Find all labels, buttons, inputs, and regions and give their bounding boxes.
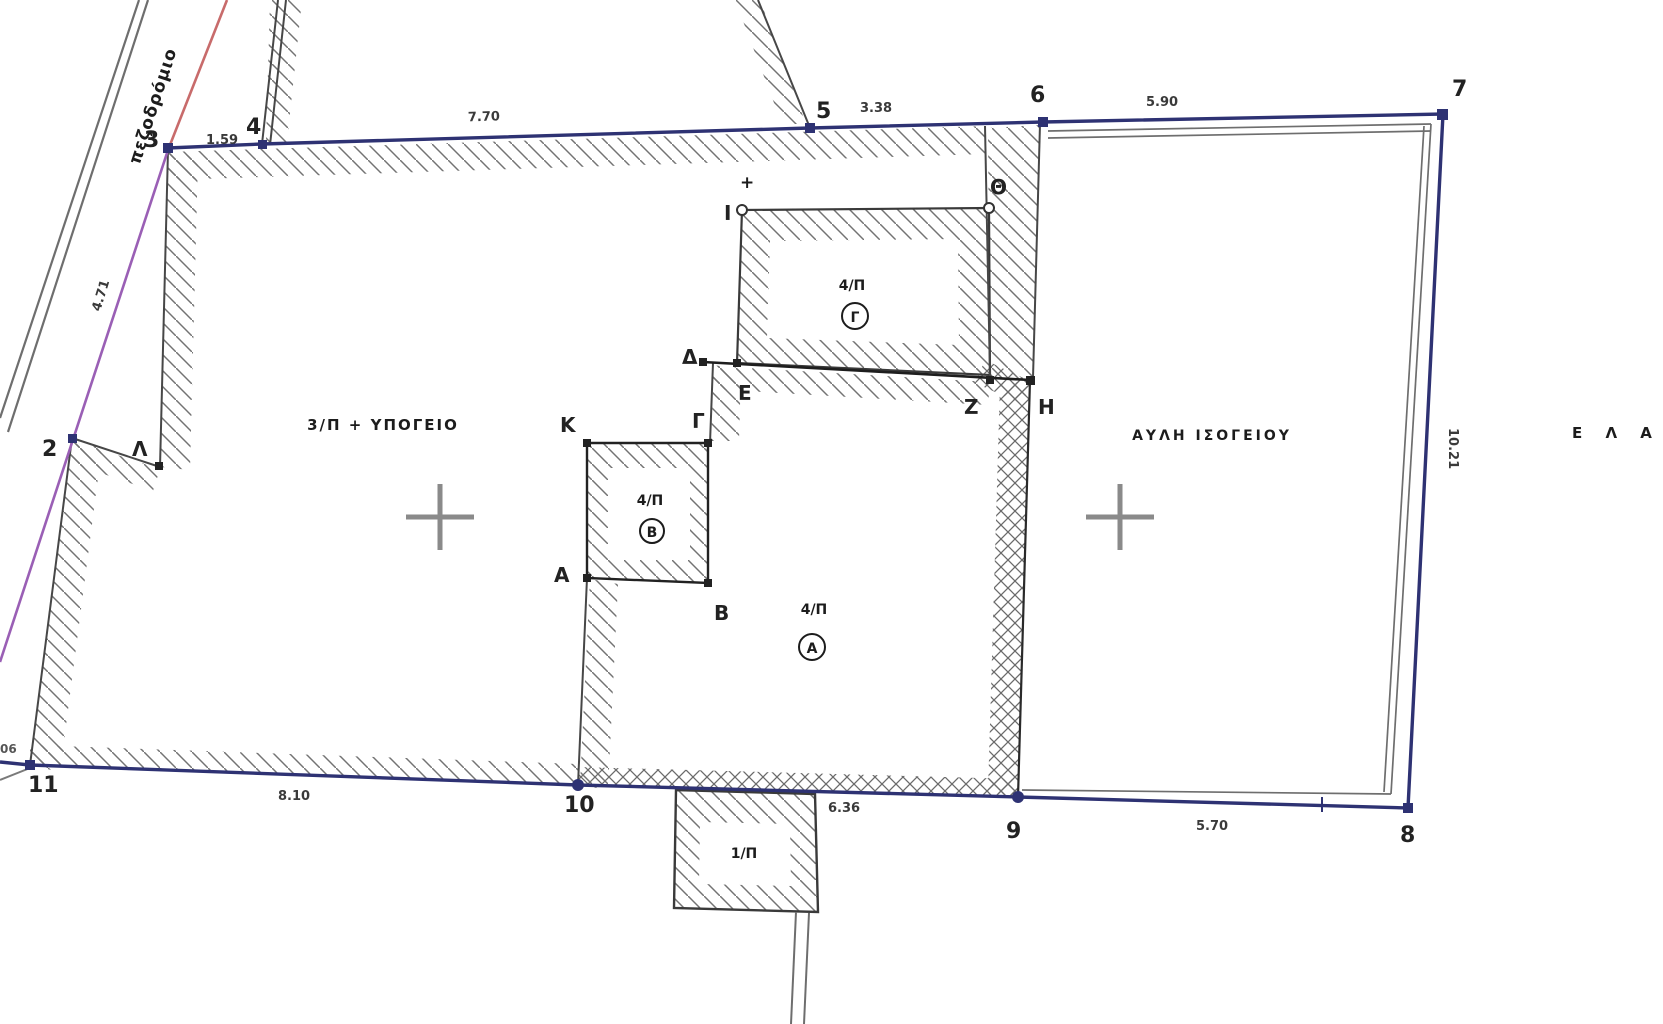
room-beta-label: 4/Π — [637, 493, 664, 509]
room-gamma-letter: Γ — [851, 310, 860, 326]
point-label-zeta: Ζ — [964, 395, 979, 419]
point-label-5: 5 — [816, 99, 831, 124]
hatching — [30, 0, 1040, 798]
marker-gamma — [704, 439, 712, 447]
point-label-beta: Β — [714, 601, 729, 625]
curb-line-1 — [0, 0, 139, 418]
point-label-lambda: Λ — [132, 437, 148, 461]
boundary — [0, 114, 1443, 812]
point-label-kappa: Κ — [560, 413, 577, 437]
point-label-iota-mark: + — [740, 173, 754, 193]
point-label-2: 2 — [42, 437, 57, 462]
marker-6 — [1038, 117, 1048, 127]
marker-5 — [805, 123, 815, 133]
marker-7 — [1437, 109, 1448, 120]
marker-lambda — [155, 462, 163, 470]
point-label-7: 7 — [1452, 77, 1467, 102]
room-gamma-label: 4/Π — [839, 278, 866, 294]
area-courtyard: ΑΥΛΗ ΙΣΟΓΕΙΟΥ — [1132, 428, 1292, 444]
measurement-9-10: 6.36 — [828, 801, 860, 816]
marker-kappa — [583, 439, 591, 447]
marker-zeta — [986, 376, 994, 384]
rooms — [587, 208, 990, 1024]
point-label-11: 11 — [28, 773, 59, 798]
marker-theta — [984, 203, 994, 213]
courtyard-boundary — [1022, 124, 1431, 794]
marker-10 — [572, 779, 584, 791]
marker-2 — [68, 434, 77, 443]
point-label-epsilon: Ε — [738, 381, 752, 405]
area-left-building: 3/Π + ΥΠΟΓΕΙΟ — [307, 416, 459, 434]
curb-line-2 — [8, 0, 148, 432]
marker-4 — [258, 140, 267, 149]
red-street-line — [168, 0, 227, 150]
marker-epsilon — [733, 359, 741, 367]
marker-delta — [699, 358, 707, 366]
room-1p-label: 1/Π — [731, 846, 758, 862]
marker-beta — [704, 579, 712, 587]
room-alpha-letter: Α — [807, 641, 818, 657]
measurement-left-edge: 06 — [0, 742, 17, 756]
marker-8 — [1403, 803, 1413, 813]
courtyard-top-line1 — [1048, 124, 1431, 131]
courtyard-right-line2 — [1384, 126, 1424, 792]
area-right-partial: Ε Λ Α Ι — [1572, 424, 1663, 442]
hatch-east-wall — [988, 125, 1040, 378]
point-label-10: 10 — [564, 793, 595, 818]
parcel-boundary-line — [0, 114, 1443, 808]
measurement-4-5: 7.70 — [468, 109, 501, 125]
marker-eta — [1026, 376, 1035, 385]
point-label-delta: Δ — [682, 345, 698, 369]
courtyard-bottom-line — [1022, 790, 1391, 794]
survey-crosses — [406, 484, 1154, 550]
marker-11 — [25, 760, 35, 770]
hatch-bottom-11-10 — [30, 745, 578, 786]
measurement-5-6: 3.38 — [860, 101, 892, 116]
room-beta-inner-white — [608, 468, 690, 560]
measurement-7-8: 10.21 — [1445, 428, 1460, 469]
room-1p-tail-line-1 — [791, 912, 796, 1024]
hatch-wall-above-5 — [735, 0, 806, 124]
point-label-gamma: Γ — [692, 409, 705, 433]
survey-plan-page: 2 3 4 5 6 7 8 9 10 11 Λ Κ Γ Α Β Δ Ε Ζ Η … — [0, 0, 1663, 1024]
point-labels: 2 3 4 5 6 7 8 9 10 11 Λ Κ Γ Α Β Δ Ε Ζ Η … — [28, 77, 1467, 848]
room-alpha-label: 4/Π — [801, 602, 828, 618]
point-label-4: 4 — [246, 115, 261, 140]
measurement-10-11: 8.10 — [278, 789, 310, 804]
survey-cross-right — [1086, 484, 1154, 550]
point-label-iota: Ι — [724, 201, 731, 225]
room-1p-tail-line-2 — [804, 913, 809, 1024]
point-label-theta: Θ — [990, 175, 1007, 199]
marker-3 — [163, 143, 173, 153]
point-label-eta: Η — [1038, 395, 1055, 419]
survey-cross-left — [406, 484, 474, 550]
point-label-8: 8 — [1400, 823, 1415, 848]
marker-iota — [737, 205, 747, 215]
marker-9 — [1012, 791, 1024, 803]
room-beta-letter: Β — [647, 525, 658, 541]
measurement-6-7: 5.90 — [1146, 95, 1178, 110]
point-label-6: 6 — [1030, 83, 1045, 108]
measurement-3-4: 1.59 — [206, 133, 238, 148]
point-label-9: 9 — [1006, 819, 1021, 844]
point-label-alpha: Α — [554, 563, 570, 587]
survey-plan-drawing: 2 3 4 5 6 7 8 9 10 11 Λ Κ Γ Α Β Δ Ε Ζ Η … — [0, 0, 1663, 1024]
point-markers — [25, 109, 1448, 813]
courtyard-top-line2 — [1048, 131, 1431, 138]
marker-alpha — [583, 574, 591, 582]
hatch-left-wall — [160, 150, 198, 470]
measurement-2-3: 4.71 — [89, 278, 113, 313]
measurement-8-9: 5.70 — [1196, 819, 1228, 834]
